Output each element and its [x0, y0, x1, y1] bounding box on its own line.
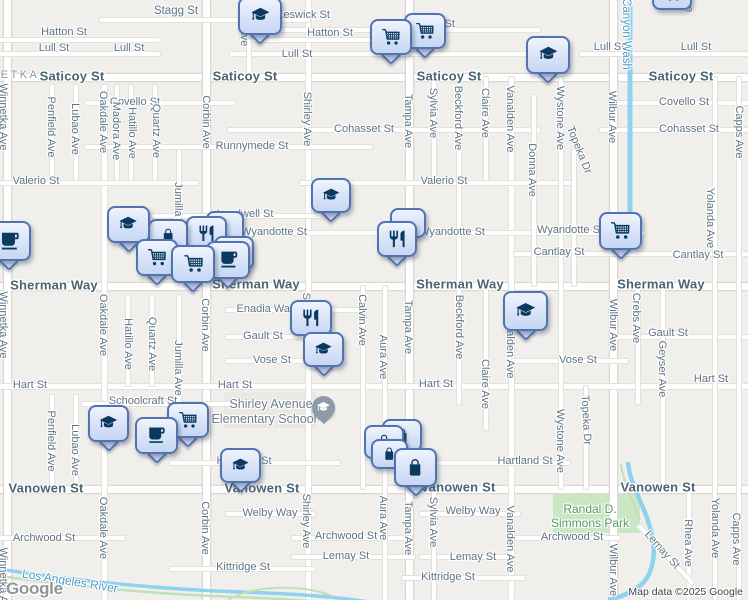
street-label: Wystone Ave — [554, 86, 566, 150]
street-label: Madora Ave — [110, 102, 122, 161]
street-label: Hatillo Ave — [122, 318, 134, 370]
street-label: Shirley Ave — [301, 92, 313, 147]
street-label: Tampa Ave — [402, 94, 414, 148]
graduation-cap-icon — [513, 300, 538, 322]
street-label: Hart St — [13, 379, 47, 391]
street-label: Hart St — [419, 378, 453, 390]
street-label: Donna Ave — [526, 143, 538, 197]
restaurant-marker[interactable] — [290, 300, 332, 336]
street-label: Lull St — [114, 42, 145, 54]
marker-card — [503, 291, 548, 331]
street-label: Beckford Ave — [452, 86, 464, 151]
shopping-cart-marker[interactable] — [652, 0, 692, 10]
street-label: Lubao Ave — [69, 103, 81, 155]
graduation-cap-marker[interactable] — [303, 332, 344, 367]
street-label: Vanowen St — [621, 480, 696, 495]
street-label: Lemay St — [323, 550, 369, 562]
graduation-cap-icon — [97, 413, 120, 433]
street-label: Lemay St — [642, 529, 682, 572]
street-label: Crebs Ave — [630, 293, 642, 344]
street-label: Lull St — [681, 41, 712, 53]
street-label: Valerio St — [13, 175, 60, 187]
street-label: Aura Ave — [377, 335, 389, 379]
street-label: Winnetka Ave — [0, 291, 9, 358]
map-canvas[interactable]: Google Map data ©2025 Google Stagg StKes… — [0, 0, 748, 600]
street-label: Geyser Ave — [656, 341, 668, 398]
street-label: Oakdale Ave — [97, 294, 109, 356]
shopping-cart-icon — [181, 253, 206, 274]
restaurant-marker[interactable] — [377, 221, 417, 257]
marker-card — [135, 417, 178, 454]
street-label: Wyandotte St — [419, 226, 485, 238]
marker-card — [88, 405, 129, 442]
coffee-cup-icon — [216, 249, 241, 270]
marker-card — [311, 178, 351, 213]
shopping-cart-marker[interactable] — [370, 19, 412, 55]
coffee-cup-icon — [144, 425, 168, 445]
street-label: Hatton St — [307, 27, 353, 39]
street-label: Penfield Ave — [45, 411, 57, 472]
shopping-bag-icon — [403, 457, 427, 479]
street-label: Gault St — [648, 327, 688, 339]
street-label: Corbin Ave — [199, 501, 211, 555]
graduation-cap-marker[interactable] — [107, 206, 150, 243]
street-label: Archwood St — [13, 532, 75, 544]
street-label: Sherman Way — [10, 278, 98, 293]
marker-card — [394, 448, 437, 487]
street-label: Rhea Ave — [682, 519, 694, 567]
street-label: Aura Ave — [377, 496, 389, 540]
street-label: Corbin Ave — [200, 95, 212, 149]
street-label: Hartland St — [497, 455, 552, 467]
street-label: Jumilla Ave — [172, 340, 184, 395]
street-label: Tampa Ave — [402, 501, 414, 555]
graduation-cap-marker[interactable] — [220, 448, 261, 483]
park-label: Simmons Park — [551, 516, 629, 530]
street-label: Vanowen St — [9, 481, 84, 496]
street-label: Vose St — [559, 354, 597, 366]
marker-card — [370, 19, 412, 55]
street-label: Saticoy St — [40, 69, 105, 84]
street-label: Capps Ave — [733, 105, 745, 158]
street-label: Welby Way — [242, 507, 297, 519]
street-label: Topeka Dr — [564, 125, 594, 176]
road — [572, 150, 576, 286]
map-attribution[interactable]: Map data ©2025 Google — [628, 586, 743, 598]
graduation-cap-marker[interactable] — [526, 36, 570, 74]
street-label: Cohasset St — [659, 123, 719, 135]
school-label: Shirley Avenue — [229, 397, 312, 411]
shopping-bag-marker[interactable] — [394, 448, 437, 487]
street-label: Wilbur Ave — [607, 544, 619, 596]
street-label: Capps Ave — [730, 512, 742, 565]
graduation-cap-icon — [320, 186, 342, 205]
water-label: Canyon Wash — [620, 0, 632, 70]
graduation-cap-marker[interactable] — [503, 291, 548, 331]
shopping-cart-icon — [608, 220, 632, 241]
graduation-cap-icon — [536, 44, 561, 65]
coffee-cup-icon — [0, 230, 21, 252]
school-pin[interactable] — [312, 396, 335, 419]
shopping-cart-marker[interactable] — [599, 212, 642, 250]
shopping-cart-icon — [176, 410, 200, 430]
street-label: Saticoy St — [213, 69, 278, 84]
street-label: Kittridge St — [421, 571, 475, 583]
street-label: Cohasset St — [334, 123, 394, 135]
shopping-cart-marker[interactable] — [171, 245, 215, 283]
neighborhood-label: ETKA — [1, 69, 40, 81]
street-label: Lemay St — [450, 551, 496, 563]
street-label: Oakdale Ave — [97, 497, 109, 559]
street-label: Runnymede St — [216, 140, 289, 152]
school-label: Elementary School — [212, 412, 317, 426]
graduation-cap-icon — [248, 5, 273, 26]
road — [0, 74, 748, 81]
marker-card — [171, 245, 215, 283]
la-river-bank2 — [228, 588, 332, 600]
street-label: Quartz Ave — [150, 104, 162, 158]
shopping-cart-icon — [413, 21, 437, 41]
street-label: Sylvia Ave — [427, 88, 439, 139]
street-label: Sherman Way — [617, 277, 705, 292]
street-label: Corbin Ave — [199, 298, 211, 352]
street-label: Oakdale Ave — [97, 91, 109, 153]
marker-card — [303, 332, 344, 367]
street-label: Covello St — [659, 96, 709, 108]
restaurant-icon — [299, 308, 323, 328]
street-label: Saticoy St — [417, 69, 482, 84]
street-label: Archwood St — [315, 530, 377, 542]
shopping-cart-icon — [145, 247, 169, 267]
street-label: Keswick St — [276, 9, 330, 21]
street-label: Hart St — [694, 373, 728, 385]
street-label: Yolanda Ave — [709, 498, 721, 559]
cafe-marker[interactable] — [0, 221, 31, 261]
marker-card — [290, 300, 332, 336]
street-label: Welby Way — [445, 505, 500, 517]
marker-card — [377, 221, 417, 257]
street-label: Penfield Ave — [45, 97, 57, 158]
marker-card — [599, 212, 642, 250]
marker-card — [220, 448, 261, 483]
street-label: Cantlay St — [534, 246, 585, 258]
street-label: Tampa Ave — [402, 300, 414, 354]
street-label: Vanalden Ave — [504, 86, 516, 153]
street-label: Yolanda Ave — [704, 188, 716, 249]
street-label: Sylvia Ave — [427, 497, 439, 548]
graduation-cap-marker[interactable] — [88, 405, 129, 442]
marker-card — [652, 0, 692, 10]
street-label: Sherman Way — [416, 277, 504, 292]
graduation-cap-marker[interactable] — [311, 178, 351, 213]
street-label: Quartz Ave — [146, 317, 158, 371]
street-label: Beckford Ave — [453, 295, 465, 360]
graduation-cap-icon — [312, 340, 335, 359]
graduation-cap-icon — [116, 214, 140, 234]
street-label: Vose St — [253, 354, 291, 366]
street-label: Archwood St — [541, 531, 603, 543]
street-label: Wystone Ave — [554, 409, 566, 473]
street-label: Saticoy St — [649, 69, 714, 84]
street-label: Wilbur Ave — [606, 91, 618, 143]
street-label: Wilbur Ave — [607, 299, 619, 351]
street-label: Claire Ave — [479, 359, 491, 409]
shopping-cart-icon — [379, 27, 403, 47]
street-label: Topeka Dr — [579, 395, 594, 446]
marker-card — [107, 206, 150, 243]
street-label: Hatillo Ave — [126, 107, 138, 159]
street-label: Stagg St — [154, 5, 198, 17]
street-label: Lull St — [39, 42, 70, 54]
google-logo: Google — [6, 579, 63, 599]
street-label: Lull St — [282, 48, 313, 60]
graduation-cap-marker[interactable] — [238, 0, 282, 35]
street-label: Cantlay St — [673, 249, 724, 261]
graduation-cap-icon — [316, 400, 331, 415]
street-label: Hatton St — [41, 26, 87, 38]
street-label: Enadia Way — [237, 303, 296, 315]
street-label: Hart St — [218, 379, 252, 391]
street-label: Claire Ave — [479, 88, 491, 138]
street-label: Wyandotte St — [537, 224, 603, 236]
street-label: Kittridge St — [216, 561, 270, 573]
marker-card — [526, 36, 570, 74]
marker-card — [0, 221, 31, 261]
restaurant-icon — [386, 229, 408, 249]
cafe-marker[interactable] — [135, 417, 178, 454]
shopping-cart-icon — [661, 0, 683, 2]
street-label: Shirley Ave — [300, 494, 312, 549]
park-label: Randal D. — [563, 502, 616, 516]
street-label: Valerio St — [421, 175, 468, 187]
street-label: Gault St — [243, 330, 283, 342]
marker-card — [238, 0, 282, 35]
graduation-cap-icon — [229, 456, 252, 475]
street-label: Lubao Ave — [69, 424, 81, 476]
street-label: Vanalden Ave — [504, 506, 516, 573]
street-label: Calvin Ave — [356, 294, 368, 346]
street-label: Winnetka Ave — [0, 83, 9, 150]
